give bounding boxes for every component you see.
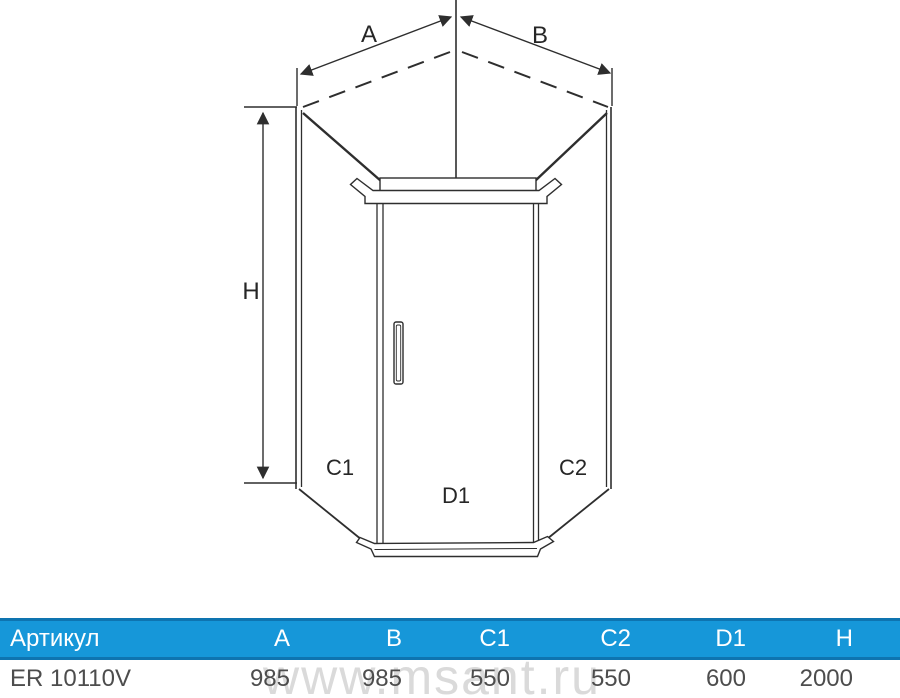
shower-enclosure-diagram: A B H bbox=[0, 0, 900, 618]
dimension-b-label: B bbox=[532, 22, 548, 49]
value-cell-article: ER 10110V bbox=[10, 665, 200, 693]
value-cell-d1: 600 bbox=[631, 665, 746, 693]
bottom-rail bbox=[357, 537, 554, 557]
value-cell-b: 985 bbox=[290, 665, 402, 693]
spec-table: Артикул A B C1 C2 D1 H ER 10110V 985 985… bbox=[0, 618, 900, 697]
header-cell-b: B bbox=[290, 625, 402, 653]
right-wall-edge bbox=[607, 107, 612, 489]
top-rail bbox=[351, 178, 562, 204]
door-handle bbox=[394, 322, 403, 384]
header-cell-c1: C1 bbox=[402, 625, 510, 653]
value-cell-c2: 550 bbox=[510, 665, 631, 693]
dimension-a-label: A bbox=[361, 21, 377, 48]
enclosure-drawing: A B H bbox=[0, 0, 900, 618]
panel-c1-label: C1 bbox=[326, 455, 354, 480]
left-wall-edge bbox=[296, 107, 302, 489]
panel-d1-label: D1 bbox=[442, 483, 470, 508]
dimension-h-label: H bbox=[242, 278, 259, 305]
header-cell-d1: D1 bbox=[631, 625, 746, 653]
header-cell-a: A bbox=[200, 625, 290, 653]
header-cell-c2: C2 bbox=[510, 625, 631, 653]
side-panel-top-edges bbox=[303, 113, 607, 181]
value-cell-h: 2000 bbox=[746, 665, 853, 693]
page: A B H bbox=[0, 0, 900, 698]
value-cell-c1: 550 bbox=[402, 665, 510, 693]
spec-table-header-row: Артикул A B C1 C2 D1 H bbox=[0, 618, 900, 660]
header-cell-article: Артикул bbox=[10, 625, 200, 653]
header-cell-h: H bbox=[746, 625, 853, 653]
panel-c2-label: C2 bbox=[559, 455, 587, 480]
value-cell-a: 985 bbox=[200, 665, 290, 693]
spec-table-data-row: ER 10110V 985 985 550 550 600 2000 bbox=[0, 660, 900, 697]
